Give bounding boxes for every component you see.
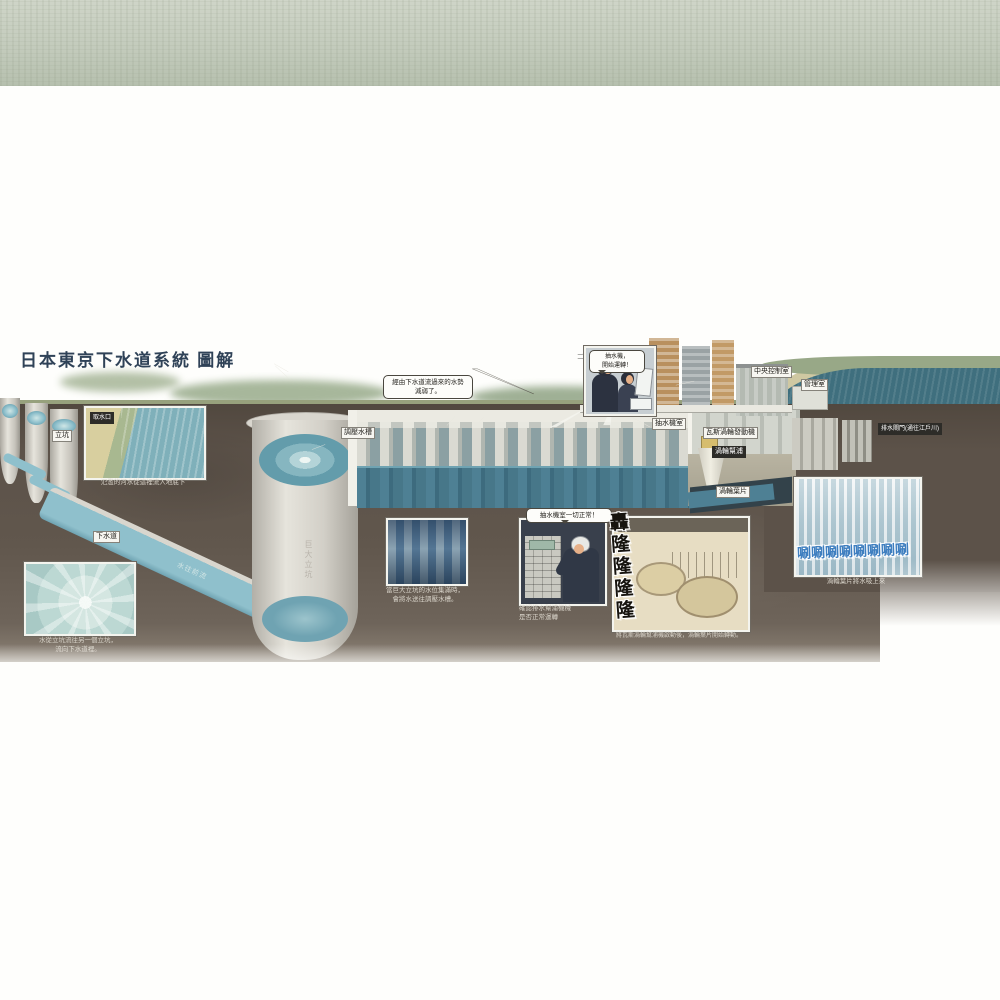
- speech-line: 經由下水道流過來的水勢: [387, 378, 469, 387]
- callout-line: [275, 366, 288, 378]
- drain-gate-label: 排水閘門(通往江戶川): [878, 423, 942, 435]
- building-tower-2: [682, 346, 710, 412]
- worker-face: [574, 544, 584, 554]
- inset-panel-check-comic: [519, 518, 607, 606]
- page-fade: [0, 644, 1000, 678]
- hill: [60, 372, 180, 392]
- pump-room-label: 抽水機室: [652, 418, 686, 430]
- weakened-speech-bubble: 經由下水道流過來的水勢 減弱了。: [383, 375, 473, 399]
- speech-line: 開始運轉！: [593, 362, 641, 371]
- panel-screen: [529, 540, 555, 550]
- building-tower-3: [712, 340, 734, 412]
- admin-office-label: 管理室: [801, 379, 828, 391]
- callout-line: [274, 364, 288, 372]
- inset-submerged-columns-photo: [386, 518, 468, 586]
- inset-intake-photo: 取水口: [84, 406, 206, 480]
- pressure-tank-label: 調壓水槽: [341, 427, 375, 439]
- control-center-label: 中央控制室: [751, 366, 792, 378]
- illustrated-spread: 日本東京下水道系統 圖解 水往前流 巨大立坑: [0, 0, 1000, 1000]
- shaft-water: [2, 404, 18, 418]
- check-caption: 確認排水幫浦機械 是否正常運轉: [519, 604, 603, 622]
- speech-line: 抽水機，: [593, 353, 641, 362]
- sewer-label: 下水道: [93, 531, 120, 543]
- drain-gate-pillars: [842, 420, 872, 462]
- monitor: [630, 398, 652, 410]
- giant-shaft-water-swirl: [259, 434, 351, 486]
- gas-turbine-label: 瓦斯渦輪發動機: [703, 427, 758, 439]
- intake-label: 取水口: [90, 412, 114, 424]
- turbine-pump-label: 渦輪幫浦: [712, 446, 746, 458]
- operator-face: [626, 375, 633, 384]
- tank-water: [357, 466, 693, 508]
- tank-fill-caption: 當巨大立坑的水位集滿時， 會將水送往調壓水槽。: [374, 586, 476, 604]
- shaft-water: [27, 411, 46, 425]
- caption-line: 會將水送往調壓水槽。: [374, 595, 476, 604]
- tank-columns: [357, 422, 693, 470]
- hall-ceiling-band: [614, 518, 748, 532]
- tank-left-wall: [348, 410, 357, 506]
- turbine-start-caption: 將瓦斯渦輪幫浦機啟動後，渦輪葉片開始轉動。: [606, 632, 752, 641]
- all-normal-speech-bubble: 抽水機室一切正常！: [526, 508, 612, 523]
- aerial-cityscape: [0, 0, 1000, 86]
- inset-whirlpool-photo: [24, 562, 136, 636]
- giant-shaft-label: 巨大立坑: [300, 540, 314, 610]
- small-shaft-1: [0, 398, 20, 484]
- pump-machine: [676, 576, 738, 618]
- speech-line: 減弱了。: [387, 387, 469, 396]
- whirlpool-swirl: [26, 564, 134, 634]
- intake-caption: 氾濫的河水從這裡流入地底下: [84, 478, 202, 487]
- turbine-blade-label: 渦輪葉片: [716, 486, 750, 498]
- page-title: 日本東京下水道系統 圖解: [20, 346, 235, 371]
- tank-column-caps: [357, 422, 693, 428]
- shaft-label: 立坑: [52, 430, 72, 442]
- water-streaks: [121, 408, 204, 478]
- start-pump-speech-bubble: 抽水機， 開始運轉！: [589, 350, 645, 373]
- caption-line: 當巨大立坑的水位集滿時，: [374, 586, 476, 595]
- caption-line: 是否正常運轉: [519, 613, 603, 622]
- operator-figure: [592, 374, 618, 412]
- discharge-structure: [792, 418, 838, 470]
- caption-line: 確認排水幫浦機械: [519, 604, 603, 613]
